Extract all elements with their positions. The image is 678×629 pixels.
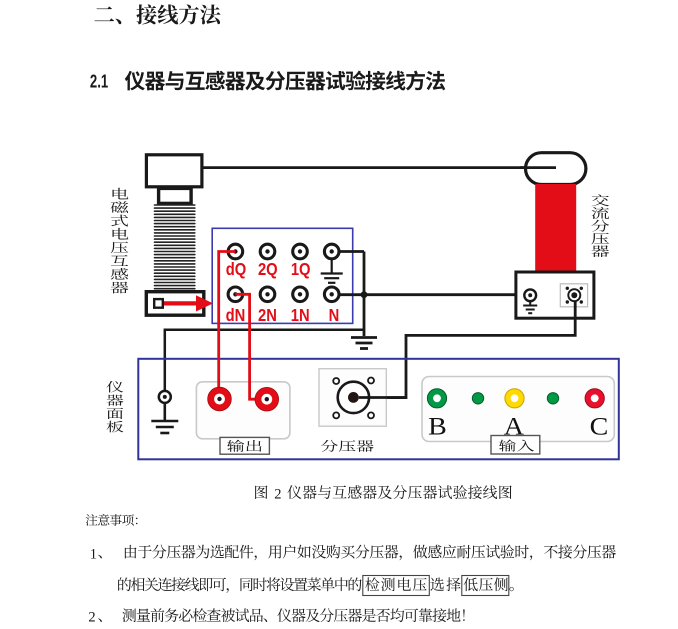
svg-text:2: 2: [88, 609, 95, 625]
svg-text:dQ: dQ: [226, 259, 247, 279]
svg-text:2.1: 2.1: [90, 73, 108, 93]
svg-text:2N: 2N: [258, 306, 277, 326]
svg-text:C: C: [590, 412, 609, 440]
svg-text:B: B: [428, 412, 447, 440]
svg-text:2: 2: [274, 486, 281, 502]
svg-text:1Q: 1Q: [291, 259, 311, 279]
svg-text:1: 1: [90, 547, 97, 563]
svg-text:1N: 1N: [291, 306, 310, 326]
svg-text:2Q: 2Q: [258, 259, 278, 279]
svg-text:N: N: [329, 306, 340, 326]
svg-text:dN: dN: [226, 306, 246, 326]
